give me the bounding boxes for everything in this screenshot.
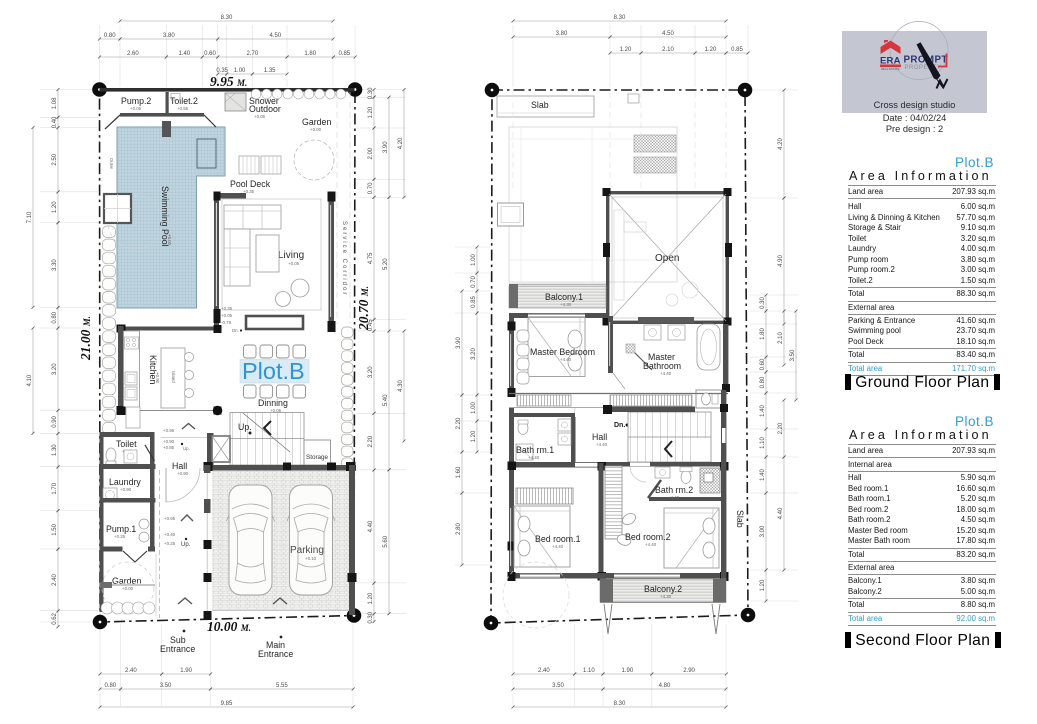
svg-text:Living: Living: [278, 250, 304, 261]
svg-text:Dn.: Dn.: [614, 422, 625, 429]
svg-text:+4.40: +4.40: [645, 542, 657, 547]
svg-text:5.55: 5.55: [276, 683, 288, 689]
svg-text:+0.90: +0.90: [155, 372, 160, 384]
svg-text:2.60: 2.60: [127, 51, 139, 57]
svg-text:3.50: 3.50: [552, 683, 564, 689]
svg-text:Balcony.1: Balcony.1: [545, 292, 583, 302]
svg-text:1.70: 1.70: [52, 482, 58, 494]
svg-text:1.40: 1.40: [760, 469, 766, 481]
svg-text:1.00: 1.00: [234, 68, 246, 74]
svg-text:Slab: Slab: [531, 100, 549, 110]
svg-text:+0.55: +0.55: [177, 106, 189, 111]
svg-text:Pump.1: Pump.1: [106, 524, 136, 534]
svg-text:2.20: 2.20: [368, 435, 374, 447]
svg-text:+0.25: +0.25: [114, 534, 126, 539]
svg-text:2.70: 2.70: [247, 51, 259, 57]
svg-text:3.50: 3.50: [160, 683, 172, 689]
svg-text:5.20: 5.20: [383, 258, 389, 270]
svg-text:0.70: 0.70: [471, 276, 477, 288]
svg-text:+0.00: +0.00: [310, 127, 322, 132]
svg-text:+0.40: +0.40: [164, 532, 176, 537]
svg-text:3.90: 3.90: [456, 337, 462, 349]
svg-text:0.35: 0.35: [216, 68, 228, 74]
svg-text:1.30: 1.30: [52, 444, 58, 456]
svg-text:Toilet.2: Toilet.2: [170, 96, 198, 106]
svg-text:Bath rm.1: Bath rm.1: [516, 445, 554, 455]
svg-text:+4.40: +4.40: [560, 357, 572, 362]
svg-text:1.20: 1.20: [705, 47, 717, 53]
svg-text:+4.40: +4.40: [668, 495, 680, 500]
svg-text:4.20: 4.20: [398, 137, 404, 149]
svg-text:Plot.B: Plot.B: [242, 358, 305, 384]
svg-text:1.08: 1.08: [52, 97, 58, 109]
svg-text:+0.00: +0.00: [167, 234, 172, 246]
svg-text:0.60: 0.60: [204, 51, 216, 57]
svg-text:+0.05: +0.05: [130, 106, 142, 111]
svg-text:0.85: 0.85: [731, 47, 743, 53]
svg-text:1.20: 1.20: [760, 579, 766, 591]
svg-text:1.10: 1.10: [760, 437, 766, 449]
svg-text:2.40: 2.40: [125, 668, 137, 674]
svg-text:+4.30: +4.30: [560, 302, 572, 307]
svg-text:Entrance: Entrance: [258, 649, 293, 659]
svg-text:1.40: 1.40: [760, 405, 766, 417]
svg-text:1.90: 1.90: [180, 668, 192, 674]
svg-text:+0.90: +0.90: [163, 439, 175, 444]
svg-text:0.80: 0.80: [52, 311, 58, 323]
svg-text:+0.00: +0.00: [122, 586, 134, 591]
svg-text:+4.40: +4.40: [528, 455, 540, 460]
svg-text:1.00: 1.00: [471, 254, 477, 266]
svg-text:Storage: Storage: [306, 454, 329, 461]
svg-text:Pump.2: Pump.2: [121, 96, 151, 106]
svg-text:0.80: 0.80: [104, 33, 116, 39]
svg-text:Dinning: Dinning: [258, 398, 288, 408]
svg-text:1.50: 1.50: [52, 523, 58, 535]
svg-text:2.20: 2.20: [456, 417, 462, 429]
svg-text:3.80: 3.80: [556, 31, 568, 37]
svg-text:Service Corridor: Service Corridor: [341, 221, 347, 296]
svg-text:Garden: Garden: [302, 117, 331, 127]
svg-text:4.20: 4.20: [778, 138, 784, 150]
svg-text:0.85: 0.85: [338, 51, 350, 57]
svg-text:1.20: 1.20: [620, 47, 632, 53]
svg-text:0.60: 0.60: [760, 358, 766, 370]
svg-text:Open: Open: [655, 253, 679, 264]
svg-text:3.90: 3.90: [383, 141, 389, 153]
svg-text:3.20: 3.20: [52, 363, 58, 375]
svg-text:Up.: Up.: [183, 446, 190, 451]
svg-text:3.80: 3.80: [163, 33, 175, 39]
svg-text:+0.90: +0.90: [120, 487, 132, 492]
svg-text:2.10: 2.10: [662, 47, 674, 53]
svg-text:8.30: 8.30: [614, 15, 626, 21]
svg-text:1.20: 1.20: [471, 430, 477, 442]
svg-text:+0.95: +0.95: [164, 516, 176, 521]
svg-text:9.85: 9.85: [221, 701, 233, 707]
svg-text:1.20: 1.20: [368, 106, 374, 118]
svg-text:2.10: 2.10: [778, 332, 784, 344]
svg-text:5.60: 5.60: [383, 535, 389, 547]
svg-text:Laundry: Laundry: [109, 477, 141, 487]
svg-text:3.00: 3.00: [760, 525, 766, 537]
svg-text:+4.30: +4.30: [660, 594, 672, 599]
svg-text:Toilet: Toilet: [116, 439, 137, 449]
svg-text:0.80: 0.80: [760, 376, 766, 388]
svg-text:+0.05: +0.05: [288, 261, 300, 266]
svg-text:0.85: 0.85: [471, 296, 477, 308]
svg-text:5.40: 5.40: [383, 394, 389, 406]
svg-text:2.40: 2.40: [52, 574, 58, 586]
svg-text:1.80: 1.80: [304, 51, 316, 57]
svg-text:0.40: 0.40: [52, 116, 58, 128]
svg-text:Bath rm.2: Bath rm.2: [655, 485, 693, 495]
svg-text:4.50: 4.50: [662, 31, 674, 37]
svg-text:8.30: 8.30: [614, 701, 626, 707]
svg-text:3.50: 3.50: [790, 349, 796, 361]
svg-text:Entrance: Entrance: [160, 644, 195, 654]
svg-text:Bed room.2: Bed room.2: [625, 532, 671, 542]
svg-text:8.30: 8.30: [221, 15, 233, 21]
svg-text:+4.40: +4.40: [660, 371, 672, 376]
svg-text:4.10: 4.10: [27, 374, 33, 386]
svg-text:1.20: 1.20: [52, 201, 58, 213]
svg-text:+0.35: +0.35: [221, 306, 233, 311]
svg-text:0.62: 0.62: [52, 612, 58, 624]
svg-text:+0.05: +0.05: [254, 114, 266, 119]
svg-text:0.30: 0.30: [760, 297, 766, 309]
svg-text:0.80: 0.80: [104, 683, 116, 689]
svg-text:0.90: 0.90: [52, 415, 58, 427]
svg-text:Bed room.1: Bed room.1: [535, 534, 581, 544]
svg-text:REAL ESTATE: REAL ESTATE: [881, 67, 900, 71]
svg-text:1.35: 1.35: [264, 68, 276, 74]
svg-text:1.80: 1.80: [760, 328, 766, 340]
svg-text:0.70: 0.70: [368, 182, 374, 194]
svg-text:2.40: 2.40: [538, 668, 550, 674]
svg-text:1.10: 1.10: [583, 668, 595, 674]
svg-text:Bathroom: Bathroom: [643, 361, 681, 371]
svg-text:0.30: 0.30: [368, 87, 374, 99]
svg-text:Hall: Hall: [592, 432, 607, 442]
svg-text:0.30: 0.30: [368, 611, 374, 623]
svg-text:1.60: 1.60: [456, 466, 462, 478]
svg-text:Outer: Outer: [109, 158, 114, 170]
svg-text:4.75: 4.75: [368, 252, 374, 264]
svg-text:Master Bedroom: Master Bedroom: [530, 347, 595, 357]
svg-text:1.00: 1.00: [471, 402, 477, 414]
svg-text:Outdoor: Outdoor: [249, 104, 281, 114]
svg-text:3.20: 3.20: [368, 366, 374, 378]
svg-text:4.80: 4.80: [659, 683, 671, 689]
svg-text:Dn.: Dn.: [232, 328, 239, 333]
svg-text:+0.25: +0.25: [164, 541, 176, 546]
svg-text:1.40: 1.40: [178, 51, 190, 57]
svg-text:Parking: Parking: [290, 545, 324, 556]
svg-text:Balcony.2: Balcony.2: [644, 584, 682, 594]
svg-text:4.40: 4.40: [368, 520, 374, 532]
svg-text:-0.75: -0.75: [221, 320, 232, 325]
svg-text:Island: Island: [171, 371, 176, 383]
svg-text:4.50: 4.50: [270, 33, 282, 39]
svg-text:Up.: Up.: [181, 542, 191, 548]
svg-text:+0.85: +0.85: [163, 445, 175, 450]
svg-text:3.20: 3.20: [471, 348, 477, 360]
svg-text:2.00: 2.00: [368, 147, 374, 159]
svg-text:+4.40: +4.40: [552, 544, 564, 549]
svg-text:+0.05: +0.05: [221, 313, 233, 318]
svg-text:4.30: 4.30: [398, 380, 404, 392]
svg-text:Hall: Hall: [172, 461, 187, 471]
svg-text:+0.10: +0.10: [305, 556, 317, 561]
svg-text:2.80: 2.80: [456, 523, 462, 535]
svg-text:2.50: 2.50: [52, 153, 58, 165]
svg-text:2.90: 2.90: [683, 668, 695, 674]
svg-text:+0.95: +0.95: [163, 428, 175, 433]
svg-text:4.90: 4.90: [778, 255, 784, 267]
svg-text:Pool Deck: Pool Deck: [230, 179, 271, 189]
svg-text:7.10: 7.10: [27, 211, 33, 223]
svg-text:4.40: 4.40: [778, 507, 784, 519]
svg-text:Slab: Slab: [735, 510, 745, 528]
svg-text:1.90: 1.90: [622, 668, 634, 674]
svg-text:Up.: Up.: [238, 422, 252, 432]
svg-text:+4.40: +4.40: [596, 442, 608, 447]
svg-text:1.20: 1.20: [368, 592, 374, 604]
svg-text:3.30: 3.30: [52, 259, 58, 271]
svg-text:+0.90: +0.90: [177, 471, 189, 476]
svg-text:2.20: 2.20: [778, 422, 784, 434]
